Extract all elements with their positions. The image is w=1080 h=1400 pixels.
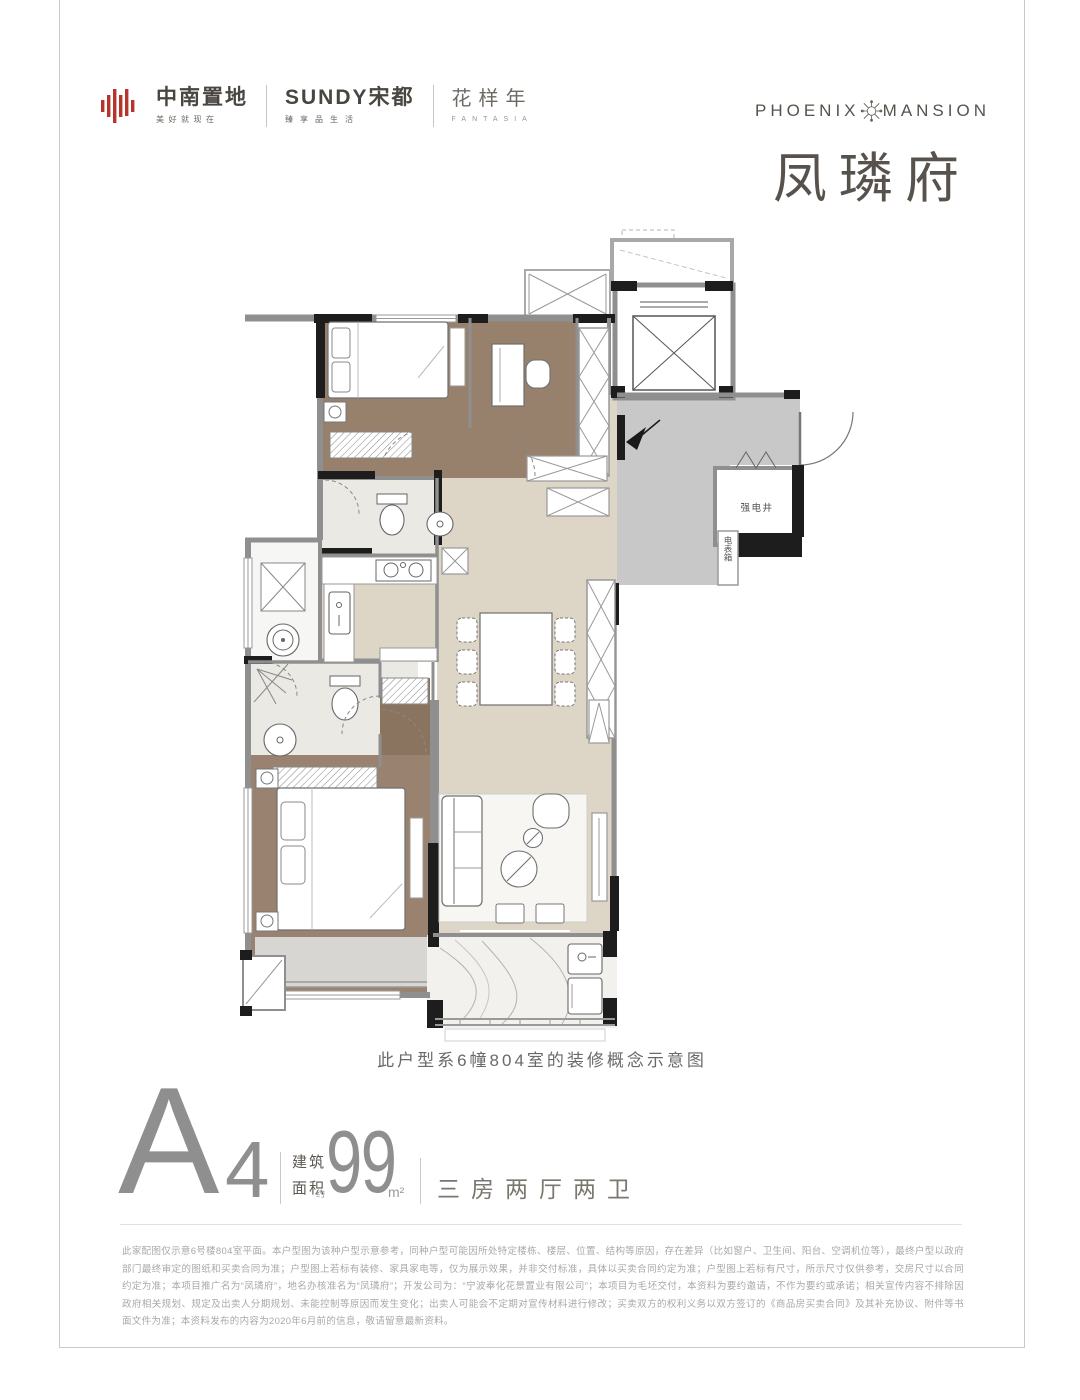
disclaimer-text: 此家配图仅示意6号楼804室平面。本户型图为该种户型示意参考，同种户型可能因所处… — [122, 1243, 964, 1331]
utility-rooms: 强电井 电表箱 — [715, 452, 804, 585]
divider-line — [120, 1224, 962, 1225]
unit-divider-1 — [280, 1152, 281, 1204]
zhongnan-logo: 中南置地 美好就现在 — [156, 87, 248, 125]
medallion-icon — [860, 96, 883, 126]
area-label-line1: 建筑 — [292, 1150, 326, 1176]
project-en-right: MANSION — [883, 101, 990, 121]
fantasia-sub: FANTASIA — [452, 116, 533, 123]
dining-area — [457, 613, 575, 706]
zhongnan-logo-icon — [100, 84, 138, 128]
electric-shaft-label: 强电井 — [740, 502, 773, 514]
project-cn-name: 凤璘府 — [752, 134, 992, 213]
area-value: 99 — [326, 1122, 395, 1201]
unit-type-number: 4 — [225, 1136, 270, 1204]
unit-type-letter: A — [118, 1082, 219, 1201]
zhongnan-name: 中南置地 — [156, 87, 248, 108]
unit-layout: 三房两厅两卫 — [437, 1170, 641, 1204]
ac-box — [525, 270, 610, 318]
area-unit: m² — [388, 1184, 404, 1200]
fantasia-logo: 花样年 FANTASIA — [452, 89, 533, 123]
brand-bar: 中南置地 美好就现在 SUNDY宋都 臻享品生活 花样年 FANTASIA — [100, 84, 533, 128]
project-english-name: PHOENIX MANSION — [755, 96, 990, 126]
unit-divider-2 — [420, 1158, 421, 1204]
meter-box-label: 电表箱 — [723, 535, 733, 562]
approx-label: 约 — [316, 1187, 325, 1200]
floorplan: 强电井 电表箱 — [230, 228, 880, 1048]
elevator-shaft — [611, 230, 733, 398]
zhongnan-tagline: 美好就现在 — [156, 114, 248, 125]
master-bedroom — [256, 769, 423, 931]
brand-divider — [433, 85, 434, 127]
project-en-left: PHOENIX — [755, 101, 860, 121]
flower-box — [240, 950, 285, 1016]
sundy-tagline: 臻享品生活 — [285, 114, 415, 125]
sundy-name: SUNDY宋都 — [285, 87, 415, 108]
fantasia-name: 花样年 — [452, 89, 533, 109]
sundy-logo: SUNDY宋都 臻享品生活 — [285, 87, 415, 125]
poster-page: 中南置地 美好就现在 SUNDY宋都 臻享品生活 花样年 FANTASIA PH… — [0, 0, 1080, 1400]
brand-divider — [266, 85, 267, 127]
